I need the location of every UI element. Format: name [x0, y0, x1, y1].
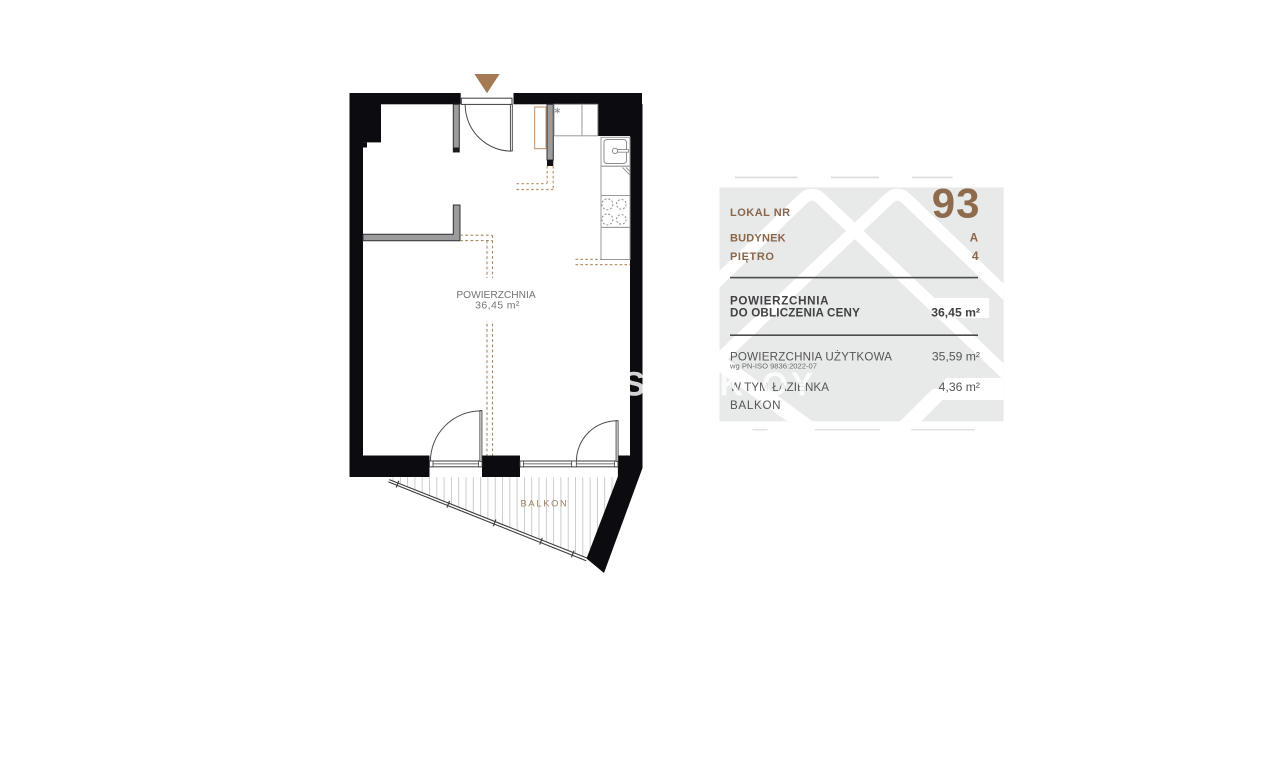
- svg-text:A: A: [970, 233, 978, 245]
- svg-text:BALKON: BALKON: [521, 498, 569, 508]
- svg-text:36,45 m²: 36,45 m²: [931, 305, 980, 319]
- svg-text:Y: Y: [791, 366, 813, 403]
- svg-text:35,59 m²: 35,59 m²: [932, 350, 980, 364]
- svg-text:LOKAL NR: LOKAL NR: [730, 207, 791, 219]
- svg-text:4: 4: [972, 249, 979, 263]
- svg-text:K: K: [720, 366, 744, 403]
- svg-text:DO OBLICZENIA CENY: DO OBLICZENIA CENY: [730, 306, 860, 319]
- svg-text:S: S: [623, 366, 646, 404]
- svg-text:93: 93: [932, 180, 981, 227]
- svg-text:PIĘTRO: PIĘTRO: [730, 251, 775, 263]
- svg-text:4,36 m²: 4,36 m²: [939, 380, 980, 394]
- svg-text:O: O: [762, 366, 788, 403]
- svg-text:36,45 m²: 36,45 m²: [475, 300, 520, 312]
- svg-text:BUDYNEK: BUDYNEK: [730, 233, 786, 245]
